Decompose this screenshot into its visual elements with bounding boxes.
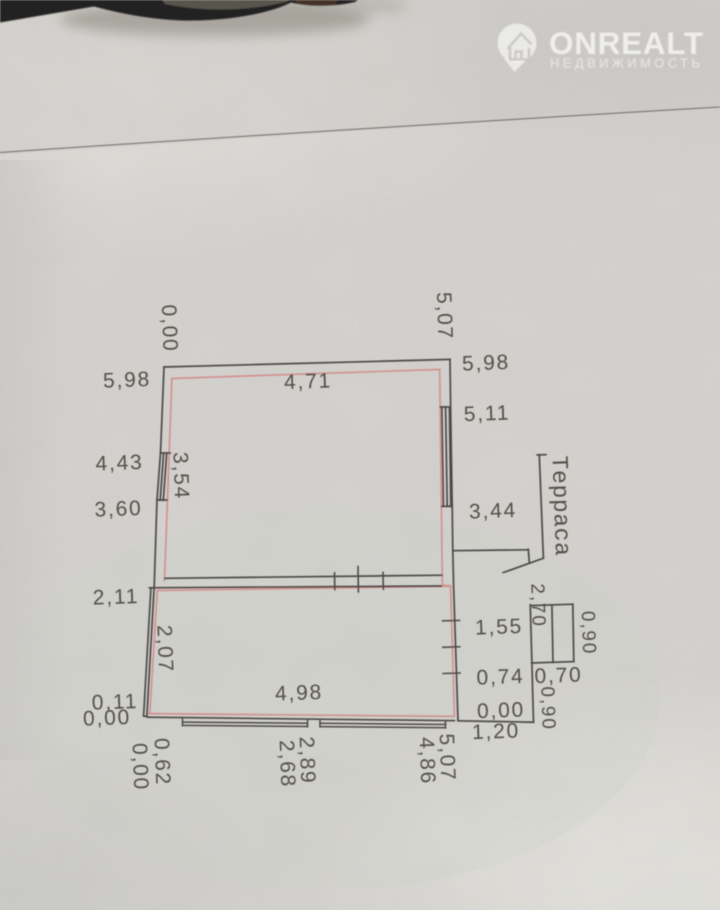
svg-text:2,07: 2,07	[152, 625, 177, 674]
svg-text:0,62: 0,62	[150, 738, 175, 787]
svg-text:0,74: 0,74	[476, 665, 525, 690]
svg-text:4,43: 4,43	[95, 451, 144, 476]
svg-text:1,55: 1,55	[475, 615, 524, 640]
svg-text:Терраса: Терраса	[545, 455, 575, 557]
svg-text:5,98: 5,98	[462, 351, 511, 376]
svg-text:0,90: 0,90	[577, 611, 600, 656]
svg-text:1,20: 1,20	[472, 719, 521, 744]
svg-text:2,70: 2,70	[526, 583, 549, 628]
svg-text:0,00: 0,00	[128, 743, 153, 792]
svg-text:2,68: 2,68	[275, 740, 300, 789]
svg-text:0,00: 0,00	[83, 706, 132, 731]
svg-text:4,98: 4,98	[275, 681, 324, 706]
svg-text:5,11: 5,11	[463, 401, 510, 426]
svg-text:0,00: 0,00	[157, 304, 182, 353]
svg-text:5,98: 5,98	[103, 368, 152, 393]
svg-text:НЕДВИЖИМОСТЬ: НЕДВИЖИМОСТЬ	[550, 55, 703, 70]
svg-text:5,07: 5,07	[432, 292, 457, 341]
svg-text:4,71: 4,71	[284, 369, 333, 394]
svg-text:4,86: 4,86	[415, 737, 440, 786]
svg-text:0,90: 0,90	[536, 686, 559, 731]
svg-text:3,60: 3,60	[94, 497, 143, 522]
svg-text:2,11: 2,11	[92, 585, 139, 610]
svg-text:3,54: 3,54	[168, 452, 193, 501]
svg-text:3,44: 3,44	[469, 499, 518, 524]
svg-text:0,70: 0,70	[534, 663, 583, 688]
